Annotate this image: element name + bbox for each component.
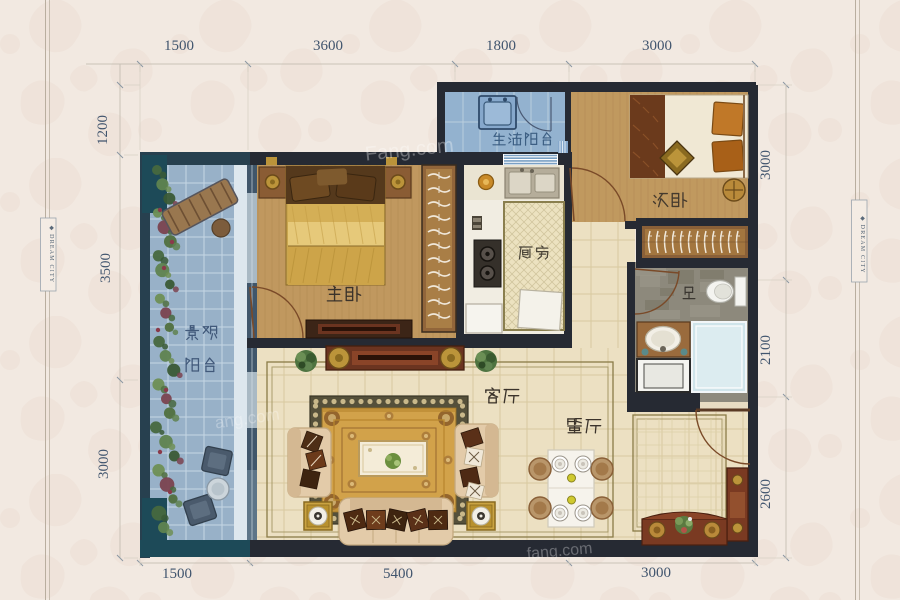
svg-text:2100: 2100: [758, 335, 774, 365]
svg-text:2600: 2600: [758, 479, 774, 509]
svg-text:◆ DREAM CITY: ◆ DREAM CITY: [859, 216, 865, 274]
svg-text:3600: 3600: [313, 38, 343, 54]
svg-text:3500: 3500: [98, 253, 114, 283]
svg-text:1500: 1500: [162, 566, 192, 582]
svg-text:◆ DREAM CITY: ◆ DREAM CITY: [48, 226, 54, 284]
svg-text:1500: 1500: [164, 38, 194, 54]
svg-text:3000: 3000: [96, 449, 112, 479]
svg-text:3000: 3000: [758, 150, 774, 180]
svg-text:1800: 1800: [486, 38, 516, 54]
svg-text:3000: 3000: [641, 565, 671, 581]
svg-text:3000: 3000: [642, 38, 672, 54]
svg-text:1200: 1200: [95, 115, 111, 145]
svg-text:5400: 5400: [383, 566, 413, 582]
